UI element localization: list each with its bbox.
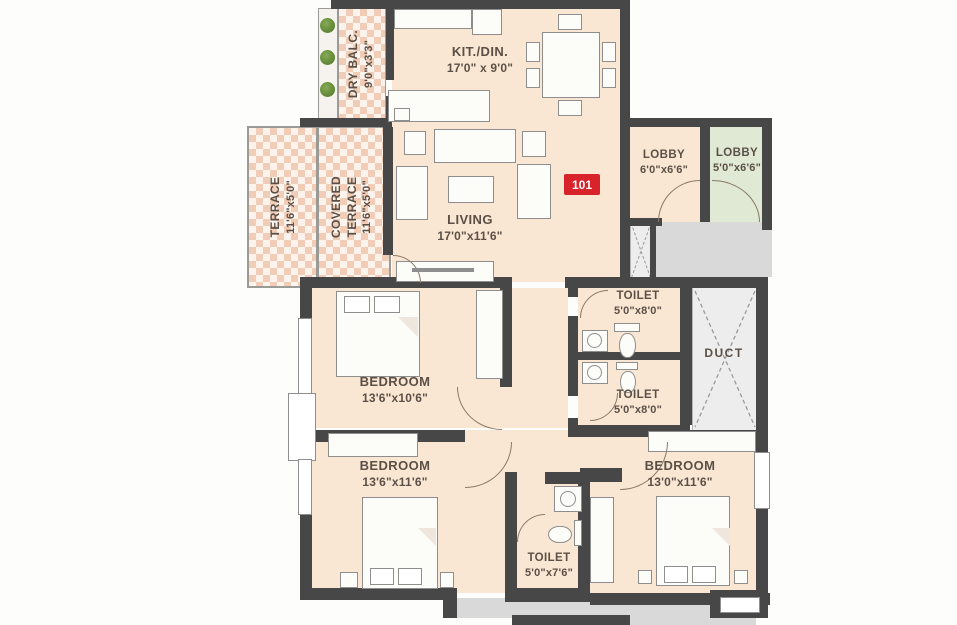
- mini-duct: [630, 222, 652, 280]
- wall: [300, 588, 457, 600]
- dining-chair: [602, 42, 616, 62]
- common-corridor-floor: [656, 222, 772, 277]
- room-label-kitchen-dining: KIT./DIN. 17'0" x 9'0": [415, 44, 545, 84]
- room-dims: 13'6"x10'6": [330, 391, 460, 407]
- wall: [386, 8, 394, 80]
- washbasin-bowl: [587, 333, 602, 348]
- pillow: [344, 296, 370, 313]
- room-name: LOBBY: [624, 148, 704, 163]
- wall: [331, 0, 630, 9]
- room-label-toilet-bottom: TOILET 5'0"x7'6": [506, 551, 592, 587]
- room-dims: 6'0"x6'6": [624, 163, 704, 177]
- room-dims: 17'0"x11'6": [405, 229, 535, 245]
- room-name: TERRACE: [268, 177, 284, 238]
- room-label-duct: DUCT: [694, 346, 754, 364]
- room-dims: 5'0"x6'6": [708, 161, 766, 175]
- room-name: LOBBY: [708, 146, 766, 161]
- mini-duct-hatch: [631, 223, 651, 279]
- side-table: [638, 570, 652, 584]
- room-label-lobby-inner: LOBBY 6'0"x6'6": [624, 148, 704, 182]
- side-table: [440, 572, 454, 588]
- wall: [568, 285, 578, 297]
- room-name: DRY BALC.: [346, 30, 362, 98]
- tv: [412, 268, 474, 272]
- room-dims: 13'6"x11'6": [330, 475, 460, 491]
- room-label-covered-terrace: COVERED TERRACE 11'6"x5'0": [325, 147, 379, 267]
- wall: [620, 118, 772, 127]
- dining-chair: [558, 14, 582, 30]
- wall: [505, 588, 590, 602]
- wall: [383, 127, 393, 255]
- room-name: BEDROOM: [330, 458, 460, 475]
- room-name: KIT./DIN.: [415, 44, 545, 61]
- room-name: BEDROOM: [330, 374, 460, 391]
- room-name: TOILET: [594, 289, 682, 304]
- sofa-three-seat: [434, 129, 516, 163]
- room-dims: 9'0"x3'3": [362, 40, 376, 88]
- blanket-fold: [398, 317, 418, 337]
- coffee-table: [448, 176, 494, 203]
- room-name-line1: COVERED: [329, 176, 345, 238]
- side-table: [522, 131, 546, 157]
- wall: [565, 277, 768, 288]
- wardrobe: [328, 433, 418, 457]
- dining-table: [542, 32, 600, 98]
- bay-window: [288, 393, 316, 461]
- sofa-two-seat: [517, 164, 551, 219]
- floor-plan-canvas: DRY BALC. 9'0"x3'3" KIT./DIN. 17'0" x 9'…: [0, 0, 957, 625]
- kitchen-counter: [394, 9, 472, 29]
- room-label-bedroom-top: BEDROOM 13'6"x10'6": [330, 374, 460, 414]
- room-dims: 17'0" x 9'0": [415, 61, 545, 77]
- wall: [756, 277, 768, 452]
- plant-icon: [320, 18, 335, 33]
- blanket-fold: [418, 528, 436, 546]
- blanket-fold: [712, 528, 730, 546]
- wall: [300, 118, 392, 127]
- room-label-lobby-outer: LOBBY 5'0"x6'6": [708, 146, 766, 180]
- wall: [620, 0, 630, 127]
- wall: [756, 507, 768, 593]
- room-label-dry-balcony: DRY BALC. 9'0"x3'3": [341, 9, 381, 119]
- wall: [650, 222, 656, 278]
- wardrobe: [476, 290, 503, 379]
- balcony-corner-window: [720, 597, 760, 613]
- room-name-line2: TERRACE: [345, 177, 361, 238]
- wardrobe: [590, 497, 614, 583]
- room-label-bedroom-bottom-left: BEDROOM 13'6"x11'6": [330, 458, 460, 498]
- room-label-living: LIVING 17'0"x11'6": [405, 212, 535, 254]
- room-name: BEDROOM: [615, 458, 745, 475]
- room-name: TOILET: [594, 388, 682, 403]
- room-dims: 5'0"x8'0": [594, 304, 682, 318]
- side-table: [340, 572, 358, 588]
- room-dims: 5'0"x8'0": [594, 403, 682, 417]
- pillow: [398, 568, 422, 585]
- room-dims: 11'6"x5'0": [360, 180, 374, 234]
- wall: [443, 588, 457, 618]
- window: [298, 318, 312, 395]
- wall: [512, 615, 630, 625]
- wall: [568, 316, 578, 396]
- wc-bowl: [548, 526, 572, 543]
- pillow: [370, 568, 394, 585]
- room-label-toilet-mid: TOILET 5'0"x8'0": [594, 388, 682, 420]
- side-table: [734, 570, 748, 584]
- dining-chair: [602, 68, 616, 88]
- wall: [300, 277, 312, 318]
- wc-tank: [616, 362, 638, 370]
- room-name: LIVING: [405, 212, 535, 229]
- kitchen-appliance: [472, 9, 502, 35]
- room-label-toilet-top: TOILET 5'0"x8'0": [594, 289, 682, 321]
- room-label-bedroom-bottom-right: BEDROOM 13'0"x11'6": [615, 458, 745, 498]
- room-label-terrace: TERRACE 11'6"x5'0": [263, 147, 303, 267]
- dining-chair: [558, 100, 582, 116]
- wall: [628, 218, 662, 226]
- terrace-divider: [316, 126, 319, 288]
- unit-number-badge: 101: [564, 174, 600, 195]
- room-name: DUCT: [694, 346, 754, 362]
- room-name: TOILET: [506, 551, 592, 566]
- pillow: [374, 296, 400, 313]
- room-dims: 11'6"x5'0": [284, 180, 298, 234]
- window: [298, 459, 312, 515]
- side-table: [404, 131, 426, 155]
- plant-icon: [320, 82, 335, 97]
- room-dims: 13'0"x11'6": [615, 475, 745, 491]
- wc-bowl: [619, 333, 636, 358]
- plant-icon: [320, 50, 335, 65]
- washbasin-bowl: [587, 365, 602, 380]
- washbasin-bowl: [560, 491, 576, 507]
- pillow: [664, 566, 688, 583]
- wc-tank: [614, 323, 640, 332]
- kitchen-sink: [394, 108, 410, 121]
- room-dims: 5'0"x7'6": [506, 566, 592, 580]
- wc-tank: [574, 520, 582, 546]
- wall: [300, 513, 312, 600]
- window: [754, 452, 770, 509]
- pillow: [692, 566, 716, 583]
